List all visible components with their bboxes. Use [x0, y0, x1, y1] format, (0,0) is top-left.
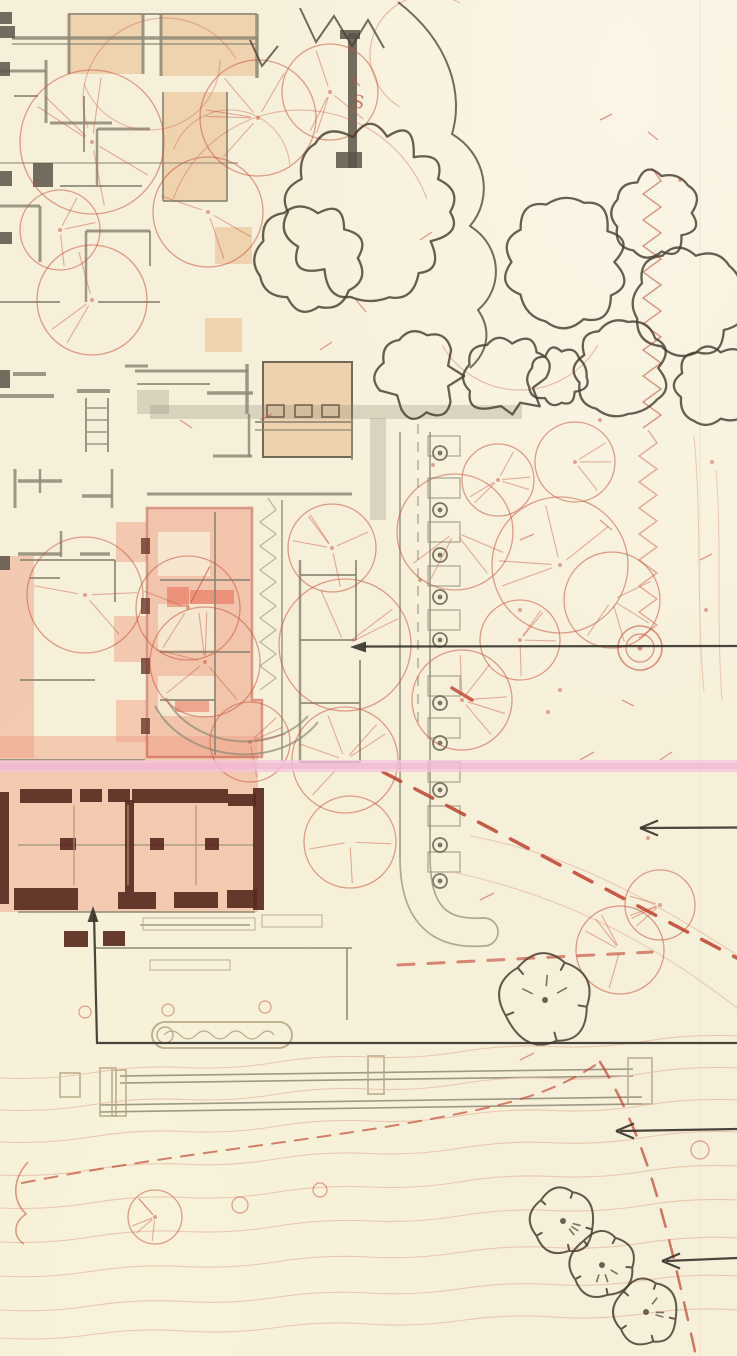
site-plan-canvas: [0, 0, 737, 1356]
paper-background: [0, 0, 737, 1356]
pink-highlighter-stripe: [0, 760, 737, 772]
site-plan-page: S: [0, 0, 737, 1356]
